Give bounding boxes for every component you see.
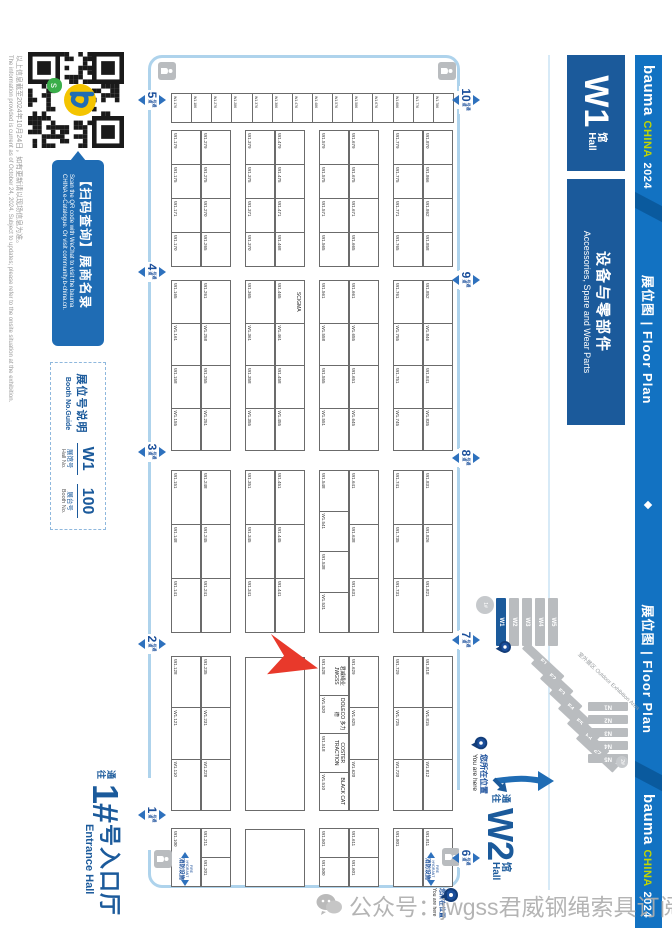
booth: W1.341 xyxy=(245,578,275,633)
screenshot-root: bauma CHINA 2024 展位图 | Floor Plan 展位图 | … xyxy=(0,0,672,928)
booth: W1.358 xyxy=(245,365,275,409)
booth: W1.121 xyxy=(171,707,201,759)
booth-number: W1.575 xyxy=(321,167,326,183)
booth-number: W1.571 xyxy=(321,201,326,217)
booth: W1.665 xyxy=(349,232,379,267)
booth-number: W1.261 xyxy=(203,283,208,299)
booth-number: W1.811 xyxy=(425,831,430,846)
booth: W1.479 xyxy=(275,130,305,165)
fire-facility-marker: FIRE HYDRANT消防设施 xyxy=(424,852,438,886)
booth-segment: W1.261W1.258W1.255W1.251 xyxy=(201,281,231,451)
fire-facility-marker: FIRE HYDRANT消防设施 xyxy=(178,852,192,886)
booth-number: W1.520 xyxy=(321,698,326,714)
booth-number: W1.170 xyxy=(173,235,178,251)
booth-segment: W1.831W1.826W1.821 xyxy=(423,471,453,633)
booth: W1.675 xyxy=(349,164,379,199)
triangle-right-icon xyxy=(181,880,189,886)
booth-segment: W1.641W1.638W1.631 xyxy=(349,471,379,633)
booth-number: W1.538 xyxy=(321,554,326,570)
booth: W1.445 xyxy=(275,524,305,579)
minimap-you-are-here-pin xyxy=(499,641,511,653)
booth-number: W1.751 xyxy=(395,368,400,384)
booth-row: W1.179W1.175W1.171W1.170W1.165W1.161W1.1… xyxy=(171,58,201,928)
aisle-marker: 7号通道 xyxy=(452,625,480,655)
booth-number: W1.831 xyxy=(425,473,430,489)
brand-logo: bauma CHINA 2024 xyxy=(640,55,657,199)
booth-number: W1.179 xyxy=(173,133,178,149)
exit-arrow-icon xyxy=(491,776,509,794)
booth-number: W1.468 xyxy=(277,235,282,251)
aisle-number: 3号通道 xyxy=(145,442,159,463)
booth-number: W1.729 xyxy=(395,659,400,675)
booth-number: W1.841 xyxy=(425,368,430,384)
aisle-gap xyxy=(319,811,349,829)
booth-number: W1.235 xyxy=(203,659,208,675)
booth: W1.671 xyxy=(349,198,379,233)
booth: W1.258 xyxy=(201,323,231,367)
booth-number: W1.370 xyxy=(247,235,252,251)
triangle-down-icon xyxy=(452,95,459,105)
booth: W1.841 xyxy=(423,365,453,409)
aisle-gap xyxy=(171,633,201,657)
booth: W1.818 xyxy=(423,656,453,708)
booth-number: W1.631 xyxy=(351,581,356,597)
booth-number: W1.555 xyxy=(321,368,326,384)
booth: W1.571 xyxy=(319,198,349,233)
booth-segment: W1.151W1.148W1.141 xyxy=(171,471,201,633)
bar-diamond xyxy=(644,500,652,508)
booth-number: W1.858 xyxy=(425,235,430,251)
booth: W1.835 xyxy=(423,408,453,452)
booth-number: W1.231 xyxy=(203,710,208,726)
booth-number: W1.158 xyxy=(173,368,178,384)
booth: W1.141 xyxy=(171,578,201,633)
booth-segment: W1.870W1.866W1.862W1.858 xyxy=(423,131,453,267)
aisle-gap xyxy=(171,267,201,281)
aisle-suffix: 号通道 xyxy=(148,451,156,460)
disclaimer-en: The information provided is current as o… xyxy=(7,55,13,402)
booth: BLACK CATW1.510 xyxy=(319,772,349,812)
booth: W1.751 xyxy=(393,365,423,409)
booth-number: W1.365 xyxy=(247,283,252,299)
triangle-down-icon xyxy=(452,635,459,645)
booth: W1.211 xyxy=(201,828,231,858)
booth-name: COSTER TRACTION xyxy=(333,735,345,771)
aisle-gap xyxy=(319,267,349,281)
booth-number: W1.255 xyxy=(203,368,208,384)
booth: W1.261 xyxy=(201,280,231,324)
booth-segment: W1.579W1.575W1.571W1.565 xyxy=(319,131,349,267)
aisle-gap xyxy=(349,811,379,829)
aisle-marker: 2号通道 xyxy=(138,629,166,659)
booth: W1.801 xyxy=(393,828,423,887)
aisle-gap xyxy=(319,451,349,471)
booth-segment xyxy=(275,657,305,928)
triangle-up-icon xyxy=(473,853,480,863)
booth-name: DOLECO 多力德 xyxy=(333,697,345,733)
booth-number: W1.579 xyxy=(321,133,326,149)
booth-number: W1.455 xyxy=(277,411,282,427)
banner-subtitle: Scan the QR code with WeChat to visit th… xyxy=(60,174,75,338)
entrance-name-en: Entrance Hall xyxy=(83,824,95,894)
booth-number: W1.165 xyxy=(173,283,178,299)
booth-number: W1.846 xyxy=(425,326,430,342)
booth-number: W1.801 xyxy=(395,831,400,847)
aisle-number: 6号通道 xyxy=(459,848,473,869)
aisle-suffix: 号通道 xyxy=(462,457,470,466)
booth: W1.555 xyxy=(319,365,349,409)
booth: W1.729 xyxy=(393,656,423,708)
triangle-up-icon xyxy=(159,810,166,820)
booth: W1.731 xyxy=(393,578,423,633)
exit-to-w2: 通往 W2 馆Hall xyxy=(484,776,516,880)
booth-segment: W1.611W1.601 xyxy=(349,829,379,887)
aisle-suffix: 号通道 xyxy=(462,639,470,648)
aisle-gap xyxy=(423,811,453,829)
booth-number: W1.475 xyxy=(277,167,282,183)
booth: W1.468 xyxy=(275,232,305,267)
booth: W1.241 xyxy=(201,578,231,633)
triangle-down-icon xyxy=(138,267,145,277)
booth: W1.151 xyxy=(171,470,201,525)
booth: W1.579 xyxy=(319,130,349,165)
aisle-gap xyxy=(423,267,453,281)
rotated-floorplan: bauma CHINA 2024 展位图 | Floor Plan 展位图 | … xyxy=(0,0,672,928)
minimap-hall-w5: W5 xyxy=(548,598,558,646)
aisle-gap xyxy=(393,811,423,829)
booth: W1.161 xyxy=(171,323,201,367)
aisle-gap xyxy=(201,267,231,281)
booth: W1.501 xyxy=(319,828,349,858)
booth-number: W1.629 xyxy=(351,659,356,675)
booth: W1.741 xyxy=(393,470,423,525)
hall-title: W1 馆Hall xyxy=(567,55,625,171)
entrance-name-zh: 号入口厅 xyxy=(95,824,127,916)
booth-segment: W1.629W1.625W1.620 xyxy=(349,657,379,811)
hall-category: 设备与零部件 Accessories, Spare and Wear Parts xyxy=(567,179,625,425)
booth-segment: W1.561W1.558W1.555W1.551 xyxy=(319,281,349,451)
booth: W1.611 xyxy=(349,828,379,858)
highlight-arrow-icon xyxy=(264,628,322,686)
aisle-gap xyxy=(201,811,231,829)
exit-to-entrance-hall: 通往 1# 号入口厅 Entrance Hall xyxy=(83,770,127,916)
booth: W1.551 xyxy=(319,408,349,452)
floor-plan-label: 展位图 | Floor Plan xyxy=(639,275,658,404)
booth-number: W1.100 xyxy=(173,831,178,847)
booth-number: W1.821 xyxy=(425,581,430,597)
entrance-number: 1# xyxy=(89,784,121,822)
booth-row: W1.479W1.475W1.471W1.468SCIGMAW1.465W1.4… xyxy=(275,58,305,928)
exit-prefix: 通往 xyxy=(490,794,510,805)
booth: W1.165 xyxy=(171,280,201,324)
booth-number: W1.852 xyxy=(425,283,430,299)
booth-segment: W1.741W1.735W1.731 xyxy=(393,471,423,633)
booth-number: W1.720 xyxy=(395,762,400,778)
booth: W1.558 xyxy=(319,323,349,367)
triangle-right-icon xyxy=(427,880,435,886)
booth-number: W1.241 xyxy=(203,581,208,597)
aisle-gap xyxy=(171,451,201,471)
booth-number: W1.211 xyxy=(203,831,208,846)
aisle-suffix: 号通道 xyxy=(148,99,156,108)
booth-number: W1.779 xyxy=(395,133,400,149)
aisle-gap xyxy=(349,267,379,281)
booth: W1.846 xyxy=(423,323,453,367)
fire-facility-label: FIRE HYDRANT消防设施 xyxy=(178,858,192,880)
booth: W1.531 xyxy=(319,592,349,634)
booth: W1.625 xyxy=(349,707,379,759)
triangle-down-icon xyxy=(138,95,145,105)
triangle-up-icon xyxy=(159,267,166,277)
aisle-gap xyxy=(393,267,423,281)
booth-number: W1.175 xyxy=(173,167,178,183)
booth: W1.761 xyxy=(393,280,423,324)
booth-number: W1.228 xyxy=(203,762,208,778)
location-pin-icon xyxy=(475,737,488,750)
booth: W1.725 xyxy=(393,707,423,759)
booth: W1.110 xyxy=(171,759,201,811)
triangle-up-icon xyxy=(473,635,480,645)
booth: W1.629 xyxy=(349,656,379,708)
minimap-entrance-2: 2# xyxy=(616,756,628,768)
booth-number: W1.812 xyxy=(425,762,430,778)
booth-number: W1.251 xyxy=(203,411,208,427)
booth-number: W1.501 xyxy=(321,831,326,847)
booth: COSTER TRACTIONW1.518 xyxy=(319,733,349,773)
booth-number: W1.375 xyxy=(247,167,252,183)
aisle-marker: 3号通道 xyxy=(138,437,166,467)
booth: W1.735 xyxy=(393,524,423,579)
booth-number: W1.361 xyxy=(247,326,252,342)
booth-number: W1.835 xyxy=(425,411,430,427)
booth-number: W1.486 xyxy=(314,96,318,108)
aisle-gap xyxy=(201,451,231,471)
minimap-hall-w2: W2 xyxy=(509,598,519,646)
booth: W1.371 xyxy=(245,198,275,233)
booth: W1.370 xyxy=(245,232,275,267)
triangle-down-icon xyxy=(452,453,459,463)
booth: W1.720 xyxy=(393,759,423,811)
booth-number: W1.551 xyxy=(321,411,326,427)
minimap-hall-n4: N4 xyxy=(588,741,628,750)
booth-number: W1.265 xyxy=(203,235,208,251)
disclaimer-zh: 以上信息截至2024年10月24日，如有更新请以现场信息为准。 xyxy=(14,55,24,247)
booth: W1.541 xyxy=(319,511,349,553)
booth-number: W1.275 xyxy=(203,167,208,183)
triangle-down-icon xyxy=(138,810,145,820)
aisle-gap xyxy=(171,811,201,829)
aisle-gap xyxy=(245,451,275,471)
booth: W1.375 xyxy=(245,164,275,199)
booth-segment: W1.279W1.275W1.270W1.265 xyxy=(201,131,231,267)
booth-number: W1.171 xyxy=(173,201,178,217)
watermark-text: 公众号：jwgss君威钢绳索具订阅号 xyxy=(349,888,672,922)
booth-number: W1.371 xyxy=(247,201,252,217)
booth-row: W1.870W1.866W1.862W1.858W1.852W1.846W1.8… xyxy=(423,58,453,928)
booth: W1.345 xyxy=(245,524,275,579)
booth: W1.471 xyxy=(275,198,305,233)
booth: W1.251 xyxy=(201,408,231,452)
booth: W1.651 xyxy=(349,365,379,409)
aisle-marker: 10号通道 xyxy=(452,85,480,115)
aisle-gap xyxy=(245,267,275,281)
triangle-up-icon xyxy=(473,95,480,105)
aisle-gap xyxy=(275,451,305,471)
aisle-marker: 6号通道 xyxy=(452,843,480,873)
aisle-number: 2号通道 xyxy=(145,634,159,655)
banner-title: 【扫码查询】展商名录 xyxy=(78,174,97,338)
booth-segment: W1.679W1.675W1.671W1.665 xyxy=(349,131,379,267)
booth-number: W1.286 xyxy=(233,96,237,108)
booth-number: W1.258 xyxy=(203,326,208,342)
brand-bar: bauma CHINA 2024 展位图 | Floor Plan 展位图 | … xyxy=(635,55,662,928)
aisle-number: 4号通道 xyxy=(145,262,159,283)
booth-segment: W1.729W1.725W1.720 xyxy=(393,657,423,811)
booth-number: W1.870 xyxy=(425,133,430,149)
aisle-number: 8号通道 xyxy=(459,448,473,469)
triangle-up-icon xyxy=(473,453,480,463)
booth: W1.661 xyxy=(349,280,379,324)
hall-code-suffix: 馆Hall xyxy=(586,132,607,150)
booth-number: W1.345 xyxy=(247,527,252,543)
aisle-gap xyxy=(423,633,453,657)
aisle-marker: 1号通道 xyxy=(138,800,166,830)
booth: W1.755 xyxy=(393,323,423,367)
booth: W1.231 xyxy=(201,707,231,759)
booth: W1.779 xyxy=(393,130,423,165)
booth-name: BLACK CAT xyxy=(338,774,344,810)
booth-segment: W1.779W1.775W1.771W1.765 xyxy=(393,131,423,267)
aisle-gap xyxy=(393,451,423,471)
booth: W1.620 xyxy=(349,759,379,811)
booth: W1.441 xyxy=(275,578,305,633)
booth: W1.831 xyxy=(423,470,453,525)
aisle-suffix: 号通道 xyxy=(148,814,156,823)
booth-segment: W1.351W1.345W1.341 xyxy=(245,471,275,633)
booth-segment: W1.128W1.121W1.110 xyxy=(171,657,201,811)
aisle-suffix: 号通道 xyxy=(462,857,470,866)
booth: W1.631 xyxy=(349,578,379,633)
booth-number: W1.121 xyxy=(173,710,178,726)
booth: W1.171 xyxy=(171,198,201,233)
booth: W1.815 xyxy=(423,707,453,759)
booth: W1.538 xyxy=(319,551,349,593)
booth-segment: W1.801 xyxy=(393,829,423,887)
booth-number: W1.661 xyxy=(351,283,356,299)
minimap-hall-w3: W3 xyxy=(522,598,532,646)
booth: W1.561 xyxy=(319,280,349,324)
booth-number: W1.531 xyxy=(321,595,326,611)
triangle-up-icon xyxy=(159,639,166,649)
booth-number: W1.755 xyxy=(395,326,400,342)
booth: W1.812 xyxy=(423,759,453,811)
wechat-qr-code: s xyxy=(28,52,124,148)
booth: W1.351 xyxy=(245,470,275,525)
booth: W1.638 xyxy=(349,524,379,579)
hall-w1-plan: W1.786W1.776W1.686W1.676W1.586W1.576W1.4… xyxy=(148,55,460,888)
booth-number: W1.745 xyxy=(395,411,400,427)
aisle-number: 1号通道 xyxy=(145,805,159,826)
booth-row: W1.379W1.375W1.371W1.370W1.365W1.361W1.3… xyxy=(245,58,275,928)
triangle-up-icon xyxy=(159,95,166,105)
aisle-gap xyxy=(275,267,305,281)
booth-segment: W1.661W1.655W1.651W1.645 xyxy=(349,281,379,451)
booth: W1.765 xyxy=(393,232,423,267)
booth: W1.645 xyxy=(349,408,379,452)
booth: W1.866 xyxy=(423,164,453,199)
booth: W1.228 xyxy=(201,759,231,811)
booth: W1.275 xyxy=(201,164,231,199)
booth-name: 君威绳业 JWGSS xyxy=(333,658,345,694)
booth-number: W1.741 xyxy=(395,473,400,489)
booth-number: W1.128 xyxy=(173,659,178,675)
booth-number: W1.620 xyxy=(351,762,356,778)
triangle-up-icon xyxy=(473,275,480,285)
triangle-down-icon xyxy=(452,853,459,863)
booth: W1.679 xyxy=(349,130,379,165)
booth: W1.175 xyxy=(171,164,201,199)
booth: W1.601 xyxy=(349,857,379,887)
booth: W1.745 xyxy=(393,408,423,452)
restroom-icon xyxy=(438,62,456,80)
booth-row: W1.679W1.675W1.671W1.665W1.661W1.655W1.6… xyxy=(349,58,379,928)
booth: W1.245 xyxy=(201,524,231,579)
booth: W1.451 xyxy=(275,470,305,525)
booth-number: W1.818 xyxy=(425,659,430,675)
booth-number: W1.548 xyxy=(321,473,326,489)
triangle-down-icon xyxy=(452,275,459,285)
booth-number: W1.458 xyxy=(277,368,282,384)
booth-number: W1.655 xyxy=(351,326,356,342)
booth-segment: W1.818W1.815W1.812 xyxy=(423,657,453,811)
booth-number: W1.151 xyxy=(173,473,178,489)
restroom-icon xyxy=(154,850,172,868)
aisle-marker: 8号通道 xyxy=(452,443,480,473)
booth-segment: W1.451W1.445W1.441 xyxy=(275,471,305,633)
booth-number: W1.641 xyxy=(351,473,356,489)
aisle-suffix: 号通道 xyxy=(148,643,156,652)
exit-prefix: 通往 xyxy=(95,770,115,781)
aisle-marker: 5号通道 xyxy=(138,85,166,115)
booth: W1.475 xyxy=(275,164,305,199)
booth-number: W1.765 xyxy=(395,235,400,251)
booth: 君威绳业 JWGSSW1.528 xyxy=(319,656,349,696)
aisle-gap xyxy=(349,451,379,471)
svg-text:s: s xyxy=(48,83,59,88)
booth: W1.128 xyxy=(171,656,201,708)
booth-number: W1.565 xyxy=(321,235,326,251)
aisle-gap xyxy=(393,633,423,657)
booth-number: W1.558 xyxy=(321,326,326,342)
booth: W1.862 xyxy=(423,198,453,233)
booth-number: W1.866 xyxy=(425,167,430,183)
booth-number: W1.510 xyxy=(321,775,326,791)
minimap-hall-n1: N1 xyxy=(588,702,628,711)
booth: W1.279 xyxy=(201,130,231,165)
restroom-icon xyxy=(158,62,176,80)
booth-number-guide: 展位号说明Booth No.Guide W1 展馆号Hall No. 100 展… xyxy=(50,362,106,530)
booth-number: W1.471 xyxy=(277,201,282,217)
booth-number: W1.638 xyxy=(351,527,356,543)
booth: W1.361 xyxy=(245,323,275,367)
booth-number: W1.465 xyxy=(277,283,282,299)
booth-number: W1.645 xyxy=(351,411,356,427)
minimap-hall-n2: N2 xyxy=(588,715,628,724)
booth-number: W1.461 xyxy=(277,326,282,342)
booth-number: W1.451 xyxy=(277,473,282,489)
booth-segment: W1.501W1.500 xyxy=(319,829,349,887)
booth-number: W1.279 xyxy=(203,133,208,149)
